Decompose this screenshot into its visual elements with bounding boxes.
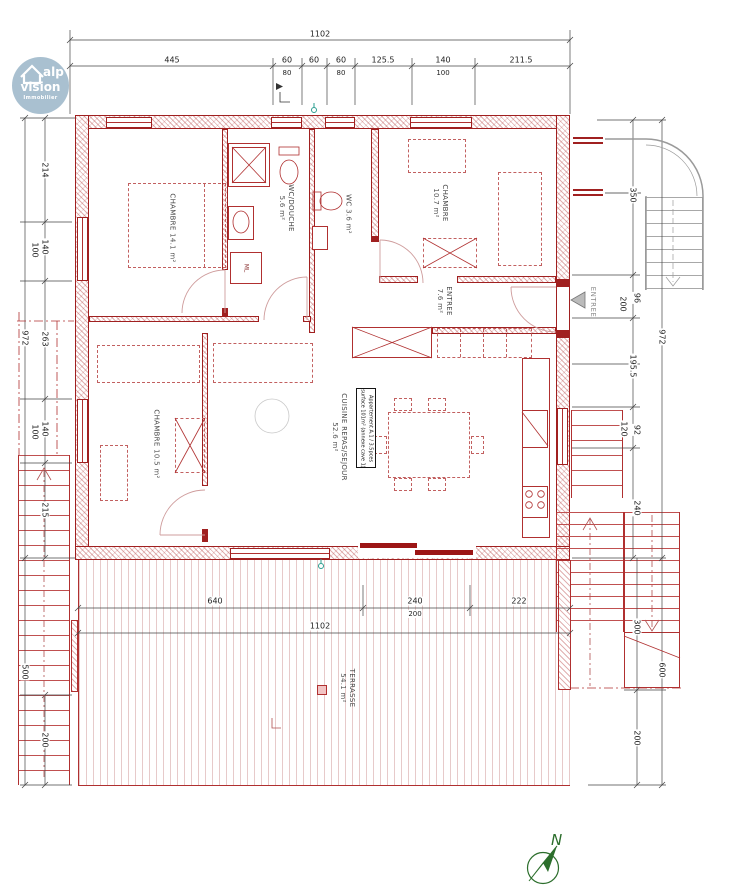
dim: 211.5 [509, 56, 534, 65]
entrance-arrow-icon [571, 292, 585, 308]
washing-machine-label: ML [243, 264, 250, 273]
dim: 972 [658, 328, 667, 345]
dim: 200 [407, 610, 422, 618]
room-area: 10.7 m² [431, 184, 440, 221]
dim: 600 [658, 661, 667, 678]
room-label-cuisine: CUISINE REPAS/SEJOUR 52.6 m² [330, 393, 348, 481]
dim: 80 [282, 69, 293, 77]
dim: 60 [308, 56, 320, 65]
stair-direction-lines [37, 468, 659, 780]
misc-symbols [255, 83, 585, 569]
dim: 60 [335, 56, 347, 65]
apartment-info-line2: surface 101m² (annexe cave 1) [359, 389, 367, 467]
apartment-info-box: Appartement A.1 / 3.5pces surface 101m² … [356, 388, 376, 468]
dim: 140 [41, 420, 50, 437]
dim: 640 [206, 597, 223, 606]
room-area: 52.6 m² [330, 393, 339, 481]
room-label-terrasse: TERRASSE 54.1 m² [338, 669, 356, 708]
room-name: CHAMBRE [153, 409, 161, 446]
dim: 240 [633, 499, 642, 516]
logo-brand2: vision [12, 80, 69, 94]
dim: 240 [406, 597, 423, 606]
room-label-wcdouche: WC/DOUCHE 5.6 m² [277, 184, 295, 231]
dim: 214 [41, 161, 50, 178]
dim: 222 [510, 597, 527, 606]
fixture-lines [175, 147, 680, 658]
dim: 140 [41, 238, 50, 255]
plant-circle [255, 399, 289, 433]
room-name: TERRASSE [347, 669, 356, 708]
dim: 350 [629, 186, 638, 203]
dim: 100 [31, 241, 40, 258]
room-name: WC/DOUCHE [286, 184, 295, 231]
room-label-wc: WC 3.6 m² [343, 194, 352, 234]
dim: 200 [619, 295, 628, 312]
room-label-chambre3: CHAMBRE 10.5 m² [151, 409, 160, 478]
dim: 120 [620, 420, 629, 437]
dim: 195.5 [629, 354, 638, 379]
dim: 125.5 [371, 56, 396, 65]
room-name: CHAMBRE [440, 184, 449, 221]
exterior-stair-rails [605, 139, 703, 290]
compass-icon: N [528, 831, 563, 884]
room-area: 14.1 m² [169, 233, 177, 263]
room-name: CUISINE REPAS/SEJOUR [339, 393, 348, 481]
dim: 445 [163, 56, 180, 65]
dim: 500 [21, 663, 30, 680]
logo-alpvision: alp vision Immobilier [12, 57, 69, 114]
dim: 60 [281, 56, 293, 65]
dim: 215 [41, 501, 50, 518]
logo-brand: alp [43, 65, 64, 79]
room-area: 3.6 m² [345, 209, 353, 234]
room-name: ENTREE [444, 286, 453, 315]
ceiling-light-icon [312, 103, 324, 569]
room-name: CHAMBRE [169, 193, 177, 230]
dim-top-total: 1102 [309, 30, 331, 39]
entrance-label: ENTREE [589, 287, 597, 318]
dim: 972 [21, 329, 30, 346]
compass-north-label: N [551, 831, 562, 849]
dim: 263 [41, 330, 50, 347]
dim: 140 [434, 56, 451, 65]
logo-brand3: Immobilier [12, 95, 69, 101]
dim: 80 [336, 69, 347, 77]
section-marker-icon [276, 83, 290, 102]
dim: 100 [435, 69, 450, 77]
wall-stubs [573, 138, 603, 195]
room-area: 7.6 m² [435, 286, 444, 315]
room-label-chambre2: CHAMBRE 10.7 m² [431, 184, 449, 221]
room-area: 10.5 m² [153, 449, 161, 479]
dim: 200 [41, 731, 50, 748]
room-area: 54.1 m² [338, 669, 347, 708]
dim: 96 [633, 292, 642, 304]
dim: 92 [633, 424, 642, 436]
dim: 100 [31, 423, 40, 440]
room-label-chambre1: CHAMBRE 14.1 m² [167, 193, 176, 262]
room-name: WC [345, 194, 353, 206]
floor-plan-canvas: N alp vision Immobilier CHAMBRE 14.1 m² … [0, 0, 733, 893]
dim: 200 [633, 729, 642, 746]
room-area: 5.6 m² [277, 184, 286, 231]
apartment-info-line1: Appartement A.1 / 3.5pces [366, 389, 374, 467]
dim: 300 [633, 618, 642, 635]
dim-bottom-total: 1102 [309, 622, 331, 631]
boundary-lines [17, 312, 683, 688]
room-label-entree: ENTREE 7.6 m² [435, 286, 453, 315]
